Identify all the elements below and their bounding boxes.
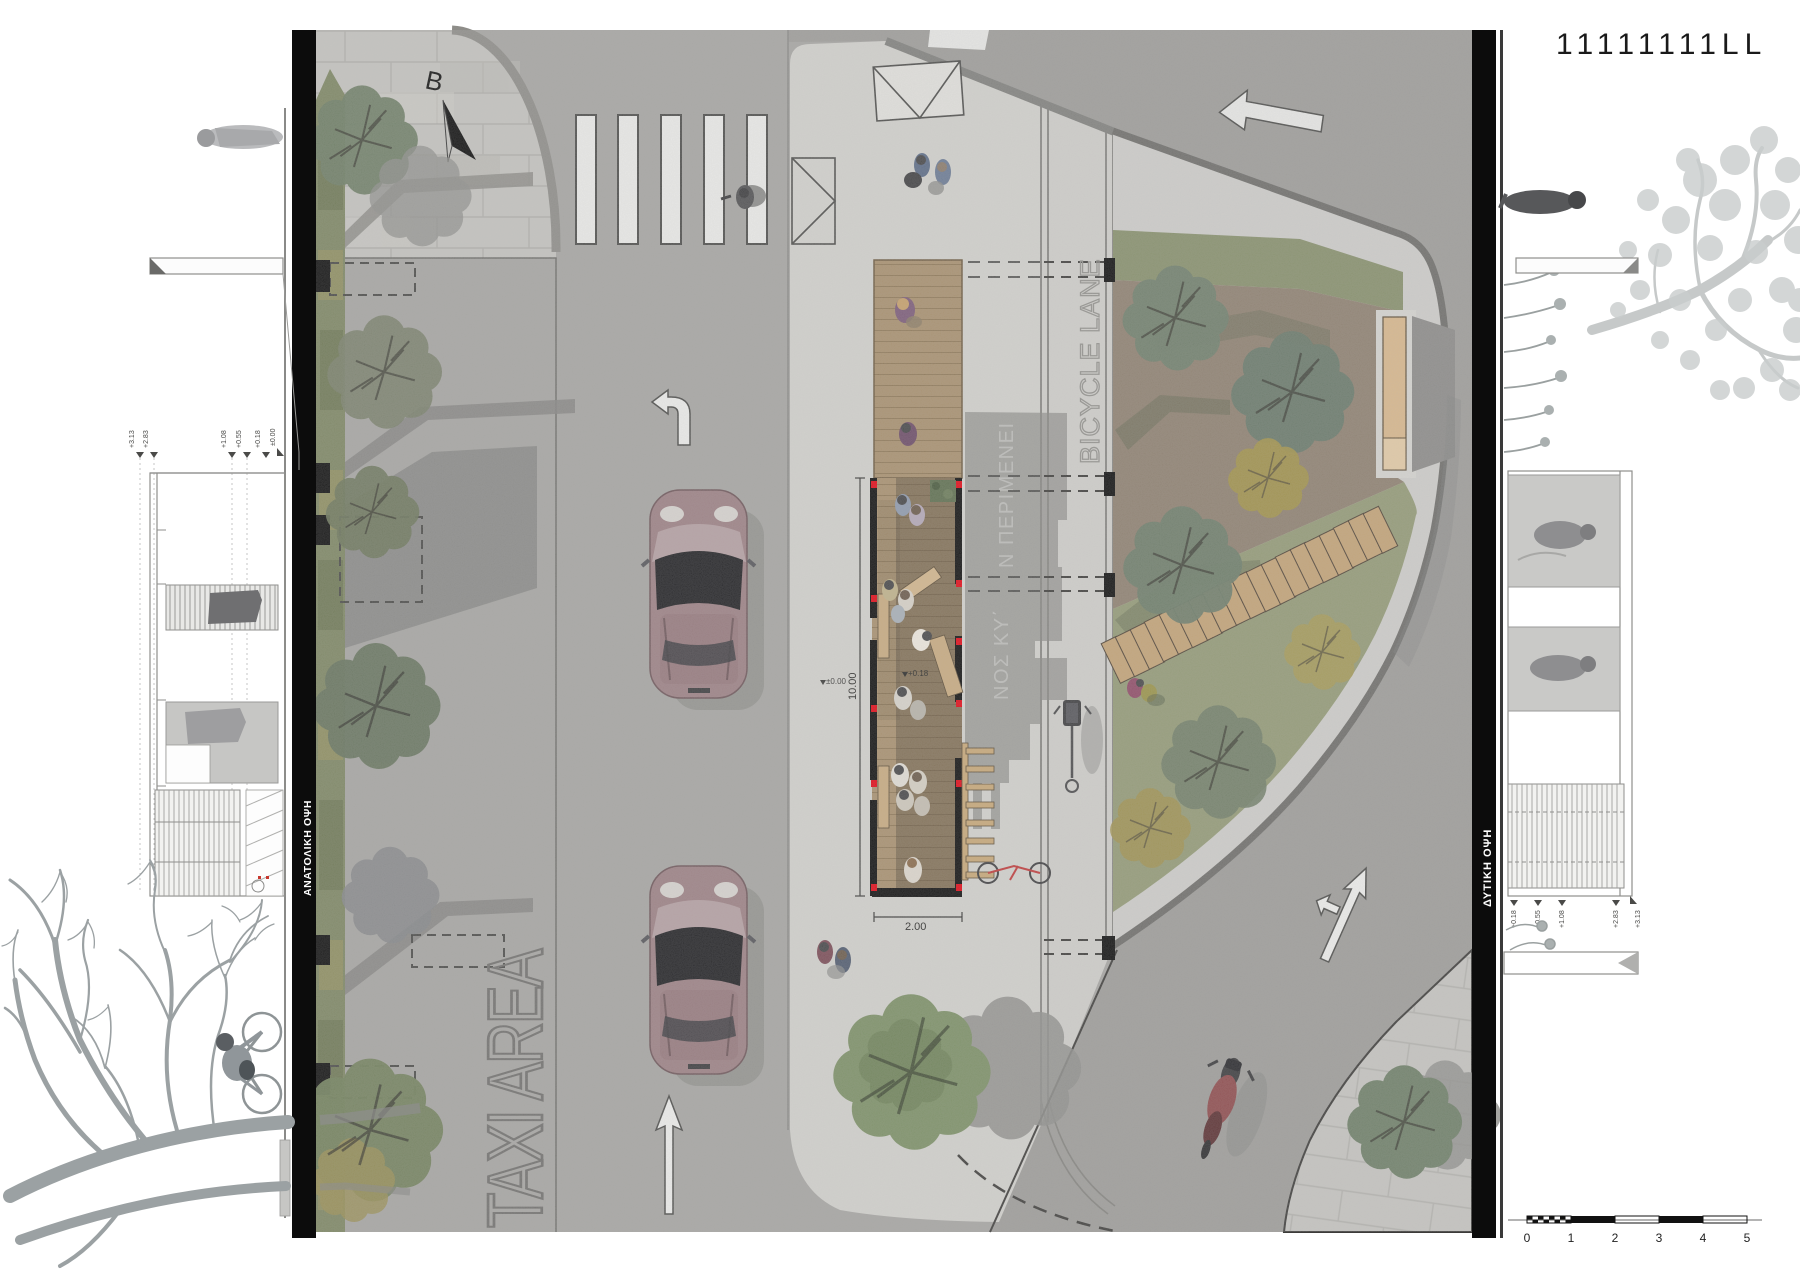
svg-text:ΑΝΑΤΟΛΙΚΗ ΟΨΗ: ΑΝΑΤΟΛΙΚΗ ΟΨΗ [302, 800, 314, 896]
svg-text:0: 0 [1524, 1231, 1531, 1245]
svg-text:+0.18: +0.18 [255, 430, 262, 448]
svg-text:+1.08: +1.08 [221, 430, 228, 448]
svg-text:5: 5 [1744, 1231, 1751, 1245]
svg-text:+3.13: +3.13 [129, 430, 136, 448]
svg-text:+3.13: +3.13 [1635, 910, 1642, 928]
svg-text:+1.08: +1.08 [1559, 910, 1566, 928]
svg-text:+0.55: +0.55 [236, 430, 243, 448]
svg-text:3: 3 [1656, 1231, 1663, 1245]
svg-text:+2.83: +2.83 [1613, 910, 1620, 928]
svg-text:4: 4 [1700, 1231, 1707, 1245]
svg-text:ΔΥΤΙΚΗ ΟΨΗ: ΔΥΤΙΚΗ ΟΨΗ [1482, 829, 1494, 907]
svg-text:+2.83: +2.83 [143, 430, 150, 448]
svg-text:11111111LL: 11111111LL [1556, 28, 1767, 61]
svg-text:2: 2 [1612, 1231, 1619, 1245]
svg-text:1: 1 [1568, 1231, 1575, 1245]
svg-text:±0.00: ±0.00 [270, 428, 277, 446]
